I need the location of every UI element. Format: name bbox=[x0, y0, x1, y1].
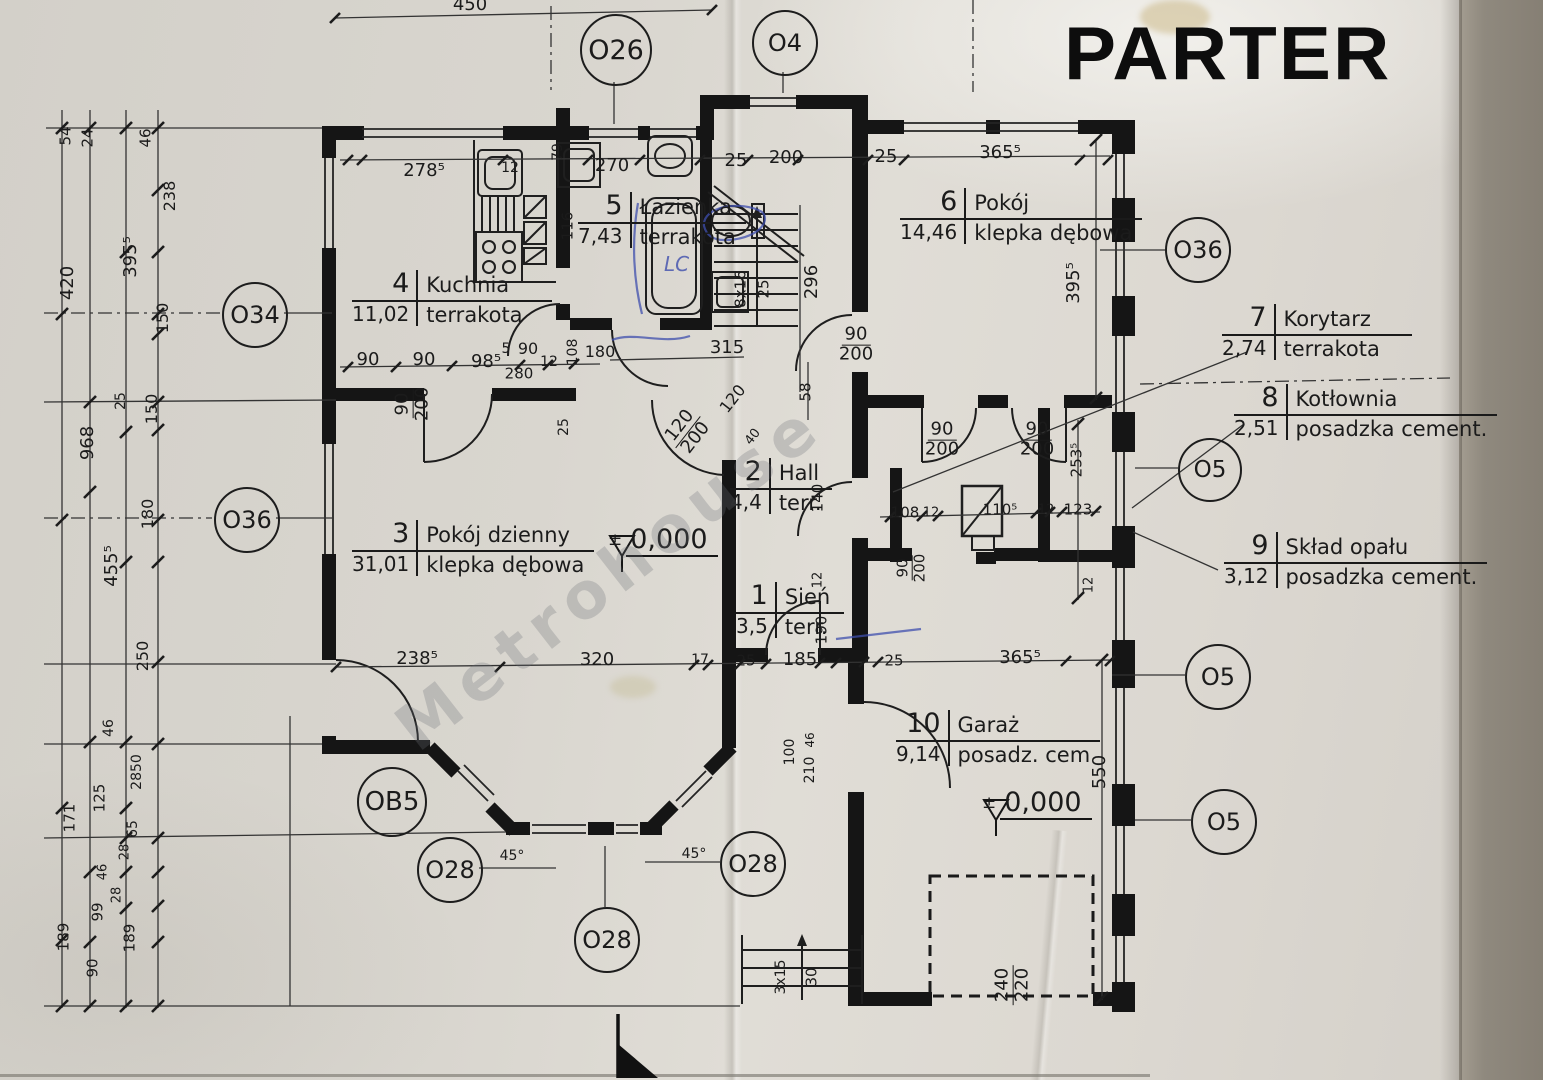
dimension-label: 25 bbox=[114, 392, 128, 410]
dimension-label: 123 bbox=[1064, 502, 1093, 517]
dimension-label: 125 bbox=[92, 784, 107, 813]
dimension-label: 253⁵ bbox=[1069, 443, 1084, 478]
reference-marker: O5 bbox=[1178, 438, 1242, 502]
dimension-label: 315 bbox=[710, 339, 744, 357]
dimension-label: 200 bbox=[769, 149, 803, 167]
dimension-label: 90 bbox=[518, 341, 538, 357]
dimension-label: 28 bbox=[110, 887, 123, 904]
room-number: 6 bbox=[900, 188, 964, 220]
room-label: 5Łazienka7,43terrakota bbox=[578, 192, 746, 248]
room-name: Kuchnia bbox=[416, 270, 552, 302]
dimension-label: 28 bbox=[118, 844, 131, 861]
room-number: 5 bbox=[578, 192, 630, 224]
dimension-label: 171 bbox=[62, 804, 77, 833]
dimension-label: 320 bbox=[580, 651, 614, 669]
room-name: Pokój bbox=[964, 188, 1142, 220]
room-floor: posadzka cement. bbox=[1286, 416, 1498, 440]
room-floor: posadz. cem bbox=[948, 742, 1101, 766]
dimension-label: 100 bbox=[783, 739, 797, 766]
room-label: 3Pokój dzienny31,01klepka dębowa bbox=[352, 520, 594, 576]
room-area: 9,14 bbox=[896, 742, 948, 766]
room-floor: terr. bbox=[769, 490, 832, 514]
reference-marker: OB5 bbox=[357, 767, 427, 837]
room-area: 7,43 bbox=[578, 224, 630, 248]
dimension-label: 46 bbox=[96, 864, 109, 881]
dimension-label: 25 bbox=[725, 152, 748, 170]
dimension-label: 12 bbox=[1038, 503, 1055, 516]
dimension-label: 30 bbox=[804, 967, 819, 986]
dimension-label: 90200 bbox=[394, 387, 433, 421]
dimension-label: 180 bbox=[585, 344, 616, 360]
dimension-label: 150 bbox=[155, 303, 171, 334]
room-label: 9Skład opału3,12posadzka cement. bbox=[1224, 532, 1487, 588]
room-label: 10Garaż9,14posadz. cem bbox=[896, 710, 1100, 766]
dimension-label: 90200 bbox=[1020, 421, 1054, 460]
scanned-floor-plan-photo: 450278⁵122702520025365⁵79116296395⁵8x162… bbox=[0, 0, 1543, 1080]
room-name: Skład opału bbox=[1276, 532, 1488, 564]
room-area: 2,51 bbox=[1234, 416, 1286, 440]
dimension-label: 90200 bbox=[925, 421, 959, 460]
dimension-label: 90200 bbox=[839, 326, 873, 365]
dimension-label: 110⁵ bbox=[983, 502, 1018, 517]
room-label: 6Pokój14,46klepka dębowa bbox=[900, 188, 1142, 244]
room-name: Garaż bbox=[948, 710, 1101, 742]
dimension-label: 210 bbox=[803, 757, 817, 784]
dimension-label: 5 bbox=[502, 342, 511, 356]
dimension-label: 365⁵ bbox=[979, 144, 1021, 162]
room-number: 7 bbox=[1222, 304, 1274, 336]
dimension-label: 238 bbox=[162, 181, 178, 212]
reference-marker: O26 bbox=[580, 14, 652, 86]
dimension-label: 90 bbox=[357, 351, 380, 369]
room-area: 31,01 bbox=[352, 552, 416, 576]
level-marker: ±0,000 bbox=[982, 787, 1092, 820]
dimension-label: 25 bbox=[875, 148, 898, 166]
dimension-label: 280 bbox=[505, 366, 534, 381]
room-name: Kotłownia bbox=[1286, 384, 1498, 416]
dimension-label: 180 bbox=[140, 499, 156, 530]
dimension-label: 296 bbox=[803, 265, 821, 299]
dimension-label: 420 bbox=[59, 266, 77, 300]
dimension-label: 395⁵ bbox=[122, 236, 140, 278]
reference-marker: O36 bbox=[214, 487, 280, 553]
level-value: 0,000 bbox=[1000, 787, 1091, 820]
room-number: 10 bbox=[896, 710, 948, 742]
dimension-label: 25 bbox=[557, 418, 571, 436]
reference-marker: O4 bbox=[752, 10, 818, 76]
dimension-label: 98⁵ bbox=[471, 353, 501, 371]
room-floor: terrakota bbox=[1274, 336, 1412, 360]
page-title: PARTER bbox=[1064, 10, 1391, 96]
dimension-label: 108 bbox=[566, 339, 580, 366]
room-area: 2,74 bbox=[1222, 336, 1274, 360]
room-area: 11,02 bbox=[352, 302, 416, 326]
dimension-label: 150 bbox=[144, 394, 160, 425]
room-floor: terrakota bbox=[630, 224, 746, 248]
dimension-label: 395⁵ bbox=[1065, 262, 1083, 304]
room-label: 8Kotłownia2,51posadzka cement. bbox=[1234, 384, 1497, 440]
room-floor: terrakota bbox=[416, 302, 552, 326]
dimension-label: 12 bbox=[1082, 577, 1095, 594]
room-area: 14,46 bbox=[900, 220, 964, 244]
dimension-label: 108 bbox=[891, 505, 920, 520]
dimension-label: 45° bbox=[500, 849, 525, 863]
room-label: 4Kuchnia11,02terrakota bbox=[352, 270, 552, 326]
room-label: 1Sień3,5terr. bbox=[736, 582, 844, 638]
reference-marker: O28 bbox=[417, 837, 483, 903]
handwritten-blue-note: LC bbox=[664, 252, 689, 276]
dimension-label: 968 bbox=[79, 426, 97, 460]
dimension-label: 365⁵ bbox=[999, 649, 1041, 667]
plus-minus-sign: ± bbox=[982, 793, 996, 813]
reference-marker: O28 bbox=[574, 907, 640, 973]
room-name: Pokój dzienny bbox=[416, 520, 594, 552]
room-name: Łazienka bbox=[630, 192, 746, 224]
room-name: Korytarz bbox=[1274, 304, 1412, 336]
dimension-label: 455⁵ bbox=[103, 545, 121, 587]
dimension-label: 46 bbox=[804, 732, 816, 747]
room-number: 9 bbox=[1224, 532, 1276, 564]
floor-plan: 450278⁵122702520025365⁵79116296395⁵8x162… bbox=[0, 0, 1543, 1080]
reference-marker: O36 bbox=[1165, 217, 1231, 283]
room-number: 8 bbox=[1234, 384, 1286, 416]
dimension-label: 90200 bbox=[896, 554, 929, 583]
dimension-label: 189 bbox=[56, 923, 71, 952]
dimension-label: 2850 bbox=[130, 754, 144, 790]
room-floor: posadzka cement. bbox=[1276, 564, 1488, 588]
dimension-label: 8x16 bbox=[733, 270, 748, 308]
dimension-label: 12 bbox=[540, 355, 558, 369]
dimension-label: 3x15 bbox=[774, 959, 788, 994]
reference-marker: O34 bbox=[222, 282, 288, 348]
dimension-label: 240220 bbox=[994, 965, 1033, 1005]
dimension-label: 90 bbox=[413, 351, 436, 369]
dimension-label: 185 bbox=[783, 651, 817, 669]
dimension-label: 278⁵ bbox=[403, 162, 445, 180]
dimension-label: 116 bbox=[560, 212, 575, 241]
dimension-label: 65 bbox=[126, 820, 140, 838]
room-number: 1 bbox=[736, 582, 775, 614]
dimension-label: 99 bbox=[90, 902, 105, 921]
reference-marker: O28 bbox=[720, 831, 786, 897]
room-label: 7Korytarz2,74terrakota bbox=[1222, 304, 1412, 360]
dimension-label: 12 bbox=[923, 506, 940, 519]
dimension-label: 250 bbox=[135, 641, 151, 672]
reference-marker: O5 bbox=[1185, 644, 1251, 710]
dimension-label: 54 bbox=[58, 126, 73, 145]
dimension-label: 24 bbox=[80, 128, 95, 147]
dimension-label: 25 bbox=[756, 279, 771, 298]
room-area: 3,12 bbox=[1224, 564, 1276, 588]
dimension-label: 46 bbox=[138, 128, 153, 147]
dimension-label: 17 bbox=[691, 653, 709, 667]
dimension-label: 25 bbox=[736, 653, 755, 668]
room-number: 4 bbox=[352, 270, 416, 302]
dimension-label: 270 bbox=[595, 157, 629, 175]
reference-marker: O5 bbox=[1191, 789, 1257, 855]
dimension-label: 25 bbox=[884, 653, 903, 668]
dimension-label: 450 bbox=[453, 0, 487, 14]
dimension-label: 12 bbox=[501, 161, 519, 175]
dimension-label: 189 bbox=[122, 924, 137, 953]
room-area: 3,5 bbox=[736, 614, 775, 638]
dimension-label: 79 bbox=[551, 143, 565, 161]
room-floor: klepka dębowa bbox=[964, 220, 1142, 244]
room-floor: terr. bbox=[775, 614, 844, 638]
room-name: Sień bbox=[775, 582, 844, 614]
dimension-label: 46 bbox=[102, 719, 116, 737]
room-number: 3 bbox=[352, 520, 416, 552]
dimension-label: 45° bbox=[682, 847, 707, 861]
dimension-label: 90 bbox=[85, 958, 100, 977]
dimension-label: 238⁵ bbox=[396, 650, 438, 668]
